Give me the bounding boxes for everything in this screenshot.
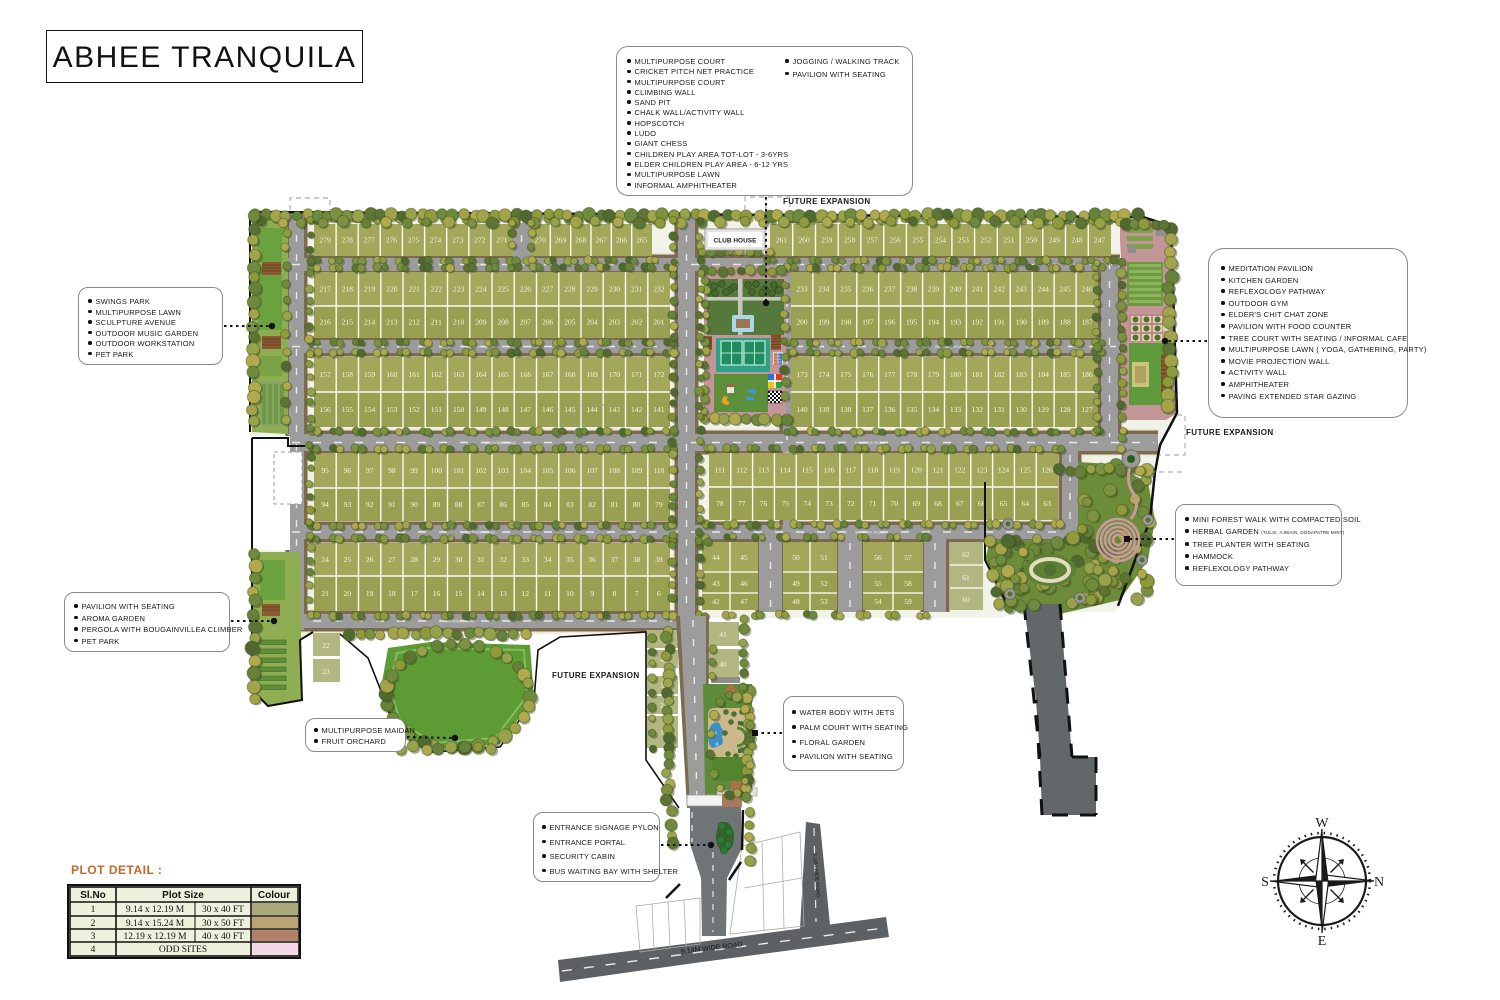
svg-text:Colour: Colour bbox=[258, 890, 290, 901]
svg-text:ODD SITES: ODD SITES bbox=[159, 945, 207, 955]
svg-text:71: 71 bbox=[869, 499, 877, 508]
svg-text:252: 252 bbox=[980, 236, 992, 245]
svg-text:222: 222 bbox=[431, 285, 443, 294]
svg-text:268: 268 bbox=[575, 236, 587, 245]
svg-text:83: 83 bbox=[566, 500, 574, 509]
svg-text:74: 74 bbox=[803, 499, 811, 508]
svg-text:81: 81 bbox=[611, 500, 619, 509]
svg-text:16: 16 bbox=[433, 589, 441, 598]
svg-text:42: 42 bbox=[712, 597, 720, 606]
svg-text:119: 119 bbox=[889, 466, 900, 475]
svg-text:227: 227 bbox=[542, 285, 554, 294]
svg-text:65: 65 bbox=[1000, 499, 1008, 508]
svg-text:187: 187 bbox=[1081, 318, 1093, 327]
svg-text:52: 52 bbox=[820, 579, 828, 588]
svg-text:146: 146 bbox=[542, 405, 554, 414]
svg-text:210: 210 bbox=[453, 318, 465, 327]
svg-text:128: 128 bbox=[1059, 405, 1071, 414]
svg-text:277: 277 bbox=[364, 236, 376, 245]
svg-text:Plot Size: Plot Size bbox=[162, 890, 204, 901]
svg-text:116: 116 bbox=[824, 466, 835, 475]
svg-text:250: 250 bbox=[1026, 236, 1038, 245]
svg-text:136: 136 bbox=[884, 405, 896, 414]
svg-text:182: 182 bbox=[994, 370, 1006, 379]
svg-text:239: 239 bbox=[928, 285, 940, 294]
svg-text:259: 259 bbox=[821, 236, 833, 245]
svg-text:118: 118 bbox=[867, 466, 878, 475]
svg-text:82: 82 bbox=[588, 500, 596, 509]
svg-text:176: 176 bbox=[862, 370, 874, 379]
svg-text:124: 124 bbox=[998, 466, 1010, 475]
svg-text:18: 18 bbox=[388, 589, 396, 598]
svg-text:185: 185 bbox=[1059, 370, 1071, 379]
svg-text:208: 208 bbox=[497, 318, 509, 327]
svg-text:276: 276 bbox=[386, 236, 398, 245]
svg-text:27: 27 bbox=[388, 555, 396, 564]
svg-text:148: 148 bbox=[497, 405, 509, 414]
svg-text:165: 165 bbox=[497, 370, 509, 379]
svg-text:133: 133 bbox=[950, 405, 962, 414]
svg-text:58: 58 bbox=[904, 579, 912, 588]
svg-text:167: 167 bbox=[542, 370, 554, 379]
svg-text:257: 257 bbox=[867, 236, 879, 245]
svg-text:266: 266 bbox=[616, 236, 628, 245]
svg-text:194: 194 bbox=[928, 318, 940, 327]
svg-text:241: 241 bbox=[972, 285, 984, 294]
svg-text:226: 226 bbox=[520, 285, 532, 294]
svg-text:205: 205 bbox=[564, 318, 576, 327]
svg-text:271: 271 bbox=[496, 236, 508, 245]
svg-text:70: 70 bbox=[891, 499, 899, 508]
svg-text:223: 223 bbox=[453, 285, 465, 294]
svg-text:9.14 x 12.19 M: 9.14 x 12.19 M bbox=[126, 905, 185, 915]
svg-text:44: 44 bbox=[712, 553, 720, 562]
svg-text:121: 121 bbox=[932, 466, 944, 475]
svg-text:4: 4 bbox=[91, 945, 96, 955]
svg-text:155: 155 bbox=[342, 405, 354, 414]
svg-text:9: 9 bbox=[590, 589, 594, 598]
svg-text:249: 249 bbox=[1049, 236, 1061, 245]
svg-text:23: 23 bbox=[322, 667, 330, 676]
svg-text:139: 139 bbox=[818, 405, 830, 414]
svg-text:178: 178 bbox=[906, 370, 918, 379]
svg-text:123: 123 bbox=[976, 466, 988, 475]
svg-text:147: 147 bbox=[520, 405, 532, 414]
svg-text:253: 253 bbox=[958, 236, 970, 245]
svg-text:240: 240 bbox=[950, 285, 962, 294]
svg-text:251: 251 bbox=[1003, 236, 1015, 245]
svg-text:244: 244 bbox=[1038, 285, 1050, 294]
svg-text:34: 34 bbox=[544, 555, 552, 564]
svg-text:12.19 x 12.19 M: 12.19 x 12.19 M bbox=[123, 932, 187, 942]
svg-text:161: 161 bbox=[408, 370, 420, 379]
svg-text:CLUB HOUSE: CLUB HOUSE bbox=[714, 238, 758, 245]
svg-text:50: 50 bbox=[792, 553, 800, 562]
svg-text:192: 192 bbox=[972, 318, 984, 327]
svg-text:77: 77 bbox=[738, 499, 746, 508]
svg-text:186: 186 bbox=[1081, 370, 1093, 379]
svg-text:169: 169 bbox=[586, 370, 598, 379]
svg-text:219: 219 bbox=[364, 285, 376, 294]
svg-text:184: 184 bbox=[1038, 370, 1050, 379]
svg-text:91: 91 bbox=[388, 500, 396, 509]
svg-text:12: 12 bbox=[522, 589, 530, 598]
svg-text:195: 195 bbox=[906, 318, 918, 327]
svg-text:33: 33 bbox=[522, 555, 530, 564]
svg-text:60: 60 bbox=[962, 595, 970, 604]
svg-text:228: 228 bbox=[564, 285, 576, 294]
svg-text:212: 212 bbox=[408, 318, 420, 327]
svg-text:216: 216 bbox=[319, 318, 331, 327]
svg-text:24: 24 bbox=[321, 555, 329, 564]
svg-text:261: 261 bbox=[776, 236, 788, 245]
svg-text:94: 94 bbox=[321, 500, 329, 509]
svg-text:211: 211 bbox=[431, 318, 442, 327]
svg-text:8: 8 bbox=[613, 589, 617, 598]
svg-text:55: 55 bbox=[874, 579, 882, 588]
svg-text:6: 6 bbox=[657, 589, 661, 598]
svg-text:51: 51 bbox=[820, 553, 828, 562]
svg-text:254: 254 bbox=[935, 236, 947, 245]
svg-text:213: 213 bbox=[386, 318, 398, 327]
svg-text:80: 80 bbox=[633, 500, 641, 509]
svg-text:53: 53 bbox=[820, 597, 828, 606]
svg-text:137: 137 bbox=[862, 405, 874, 414]
svg-text:11: 11 bbox=[544, 589, 551, 598]
svg-text:214: 214 bbox=[364, 318, 376, 327]
svg-text:273: 273 bbox=[452, 236, 464, 245]
svg-text:265: 265 bbox=[636, 236, 648, 245]
svg-text:49: 49 bbox=[792, 579, 800, 588]
svg-text:31: 31 bbox=[477, 555, 485, 564]
svg-text:170: 170 bbox=[609, 370, 621, 379]
svg-text:43: 43 bbox=[712, 579, 720, 588]
svg-text:145: 145 bbox=[564, 405, 576, 414]
svg-text:230: 230 bbox=[609, 285, 621, 294]
svg-text:41: 41 bbox=[719, 630, 727, 639]
svg-text:153: 153 bbox=[386, 405, 398, 414]
svg-text:90: 90 bbox=[410, 500, 418, 509]
svg-text:7: 7 bbox=[635, 589, 639, 598]
svg-text:69: 69 bbox=[912, 499, 920, 508]
svg-text:233: 233 bbox=[796, 285, 808, 294]
svg-text:88: 88 bbox=[455, 500, 463, 509]
svg-text:229: 229 bbox=[586, 285, 598, 294]
svg-text:197: 197 bbox=[862, 318, 874, 327]
svg-text:181: 181 bbox=[972, 370, 984, 379]
svg-text:25: 25 bbox=[344, 555, 352, 564]
svg-text:13: 13 bbox=[499, 589, 507, 598]
svg-text:20: 20 bbox=[344, 589, 352, 598]
svg-text:138: 138 bbox=[840, 405, 852, 414]
svg-text:175: 175 bbox=[840, 370, 852, 379]
svg-text:191: 191 bbox=[994, 318, 1006, 327]
svg-text:107: 107 bbox=[586, 466, 598, 475]
svg-text:86: 86 bbox=[499, 500, 507, 509]
svg-text:260: 260 bbox=[798, 236, 810, 245]
svg-text:30 x 50 FT: 30 x 50 FT bbox=[202, 919, 244, 929]
svg-text:174: 174 bbox=[818, 370, 830, 379]
svg-text:54: 54 bbox=[874, 597, 882, 606]
svg-text:14: 14 bbox=[477, 589, 485, 598]
svg-text:221: 221 bbox=[408, 285, 420, 294]
svg-text:162: 162 bbox=[431, 370, 443, 379]
svg-text:15: 15 bbox=[455, 589, 463, 598]
svg-text:21: 21 bbox=[321, 589, 329, 598]
svg-text:109: 109 bbox=[631, 466, 643, 475]
svg-text:92: 92 bbox=[366, 500, 374, 509]
svg-text:Sl.No: Sl.No bbox=[80, 890, 106, 901]
svg-text:126: 126 bbox=[1041, 466, 1053, 475]
svg-text:106: 106 bbox=[564, 466, 576, 475]
svg-text:134: 134 bbox=[928, 405, 940, 414]
svg-text:47: 47 bbox=[740, 597, 748, 606]
svg-text:157: 157 bbox=[319, 370, 331, 379]
svg-text:272: 272 bbox=[474, 236, 486, 245]
svg-text:201: 201 bbox=[653, 318, 665, 327]
svg-text:237: 237 bbox=[884, 285, 896, 294]
svg-text:100: 100 bbox=[431, 466, 443, 475]
svg-text:108: 108 bbox=[609, 466, 621, 475]
svg-text:127: 127 bbox=[1081, 405, 1093, 414]
svg-text:180: 180 bbox=[950, 370, 962, 379]
svg-text:269: 269 bbox=[555, 236, 567, 245]
svg-text:97: 97 bbox=[366, 466, 374, 475]
svg-text:36: 36 bbox=[588, 555, 596, 564]
svg-text:130: 130 bbox=[1016, 405, 1028, 414]
svg-text:93: 93 bbox=[344, 500, 352, 509]
svg-text:143: 143 bbox=[609, 405, 621, 414]
svg-text:206: 206 bbox=[542, 318, 554, 327]
svg-text:245: 245 bbox=[1059, 285, 1071, 294]
svg-text:247: 247 bbox=[1094, 236, 1106, 245]
svg-text:57: 57 bbox=[904, 553, 912, 562]
svg-text:115: 115 bbox=[802, 466, 813, 475]
svg-text:258: 258 bbox=[844, 236, 856, 245]
svg-text:209: 209 bbox=[475, 318, 487, 327]
svg-text:171: 171 bbox=[631, 370, 643, 379]
svg-text:104: 104 bbox=[520, 466, 532, 475]
svg-text:12M WIDE ROAD: 12M WIDE ROAD bbox=[484, 440, 516, 445]
svg-text:22: 22 bbox=[322, 641, 330, 650]
svg-text:172: 172 bbox=[653, 370, 665, 379]
svg-text:154: 154 bbox=[364, 405, 376, 414]
svg-text:40: 40 bbox=[719, 660, 727, 669]
svg-text:132: 132 bbox=[972, 405, 984, 414]
svg-text:30: 30 bbox=[455, 555, 463, 564]
svg-text:99: 99 bbox=[410, 466, 418, 475]
svg-text:96: 96 bbox=[344, 466, 352, 475]
svg-text:278: 278 bbox=[342, 236, 354, 245]
svg-text:68: 68 bbox=[934, 499, 942, 508]
svg-text:275: 275 bbox=[408, 236, 420, 245]
svg-text:28: 28 bbox=[410, 555, 418, 564]
svg-text:79: 79 bbox=[655, 500, 663, 509]
svg-text:238: 238 bbox=[906, 285, 918, 294]
svg-text:78: 78 bbox=[716, 499, 724, 508]
svg-text:35: 35 bbox=[566, 555, 574, 564]
svg-text:204: 204 bbox=[586, 318, 598, 327]
svg-text:84: 84 bbox=[544, 500, 552, 509]
svg-text:231: 231 bbox=[631, 285, 643, 294]
svg-text:256: 256 bbox=[889, 236, 901, 245]
svg-text:179: 179 bbox=[928, 370, 940, 379]
svg-text:73: 73 bbox=[825, 499, 833, 508]
svg-text:40 x 40 FT: 40 x 40 FT bbox=[202, 932, 244, 942]
svg-text:198: 198 bbox=[840, 318, 852, 327]
svg-text:149: 149 bbox=[475, 405, 487, 414]
svg-text:220: 220 bbox=[386, 285, 398, 294]
svg-text:101: 101 bbox=[453, 466, 465, 475]
svg-text:200: 200 bbox=[796, 318, 808, 327]
svg-text:203: 203 bbox=[609, 318, 621, 327]
svg-text:224: 224 bbox=[475, 285, 487, 294]
svg-text:246: 246 bbox=[1081, 285, 1093, 294]
svg-text:168: 168 bbox=[564, 370, 576, 379]
svg-text:95: 95 bbox=[321, 466, 329, 475]
svg-text:37: 37 bbox=[611, 555, 619, 564]
svg-text:114: 114 bbox=[780, 466, 791, 475]
svg-text:156: 156 bbox=[319, 405, 331, 414]
svg-text:166: 166 bbox=[520, 370, 532, 379]
svg-text:215: 215 bbox=[342, 318, 354, 327]
svg-text:267: 267 bbox=[596, 236, 608, 245]
svg-text:72: 72 bbox=[847, 499, 855, 508]
svg-text:75: 75 bbox=[782, 499, 790, 508]
svg-text:56: 56 bbox=[874, 553, 882, 562]
svg-text:144: 144 bbox=[586, 405, 598, 414]
svg-text:46: 46 bbox=[740, 579, 748, 588]
svg-text:152: 152 bbox=[408, 405, 420, 414]
svg-text:3: 3 bbox=[91, 932, 96, 942]
svg-text:59: 59 bbox=[904, 597, 912, 606]
svg-text:112: 112 bbox=[736, 466, 747, 475]
svg-text:131: 131 bbox=[994, 405, 1006, 414]
svg-text:225: 225 bbox=[497, 285, 509, 294]
svg-text:274: 274 bbox=[430, 236, 442, 245]
svg-text:196: 196 bbox=[884, 318, 896, 327]
svg-text:141: 141 bbox=[653, 405, 665, 414]
svg-text:1: 1 bbox=[91, 905, 96, 915]
svg-text:207: 207 bbox=[520, 318, 532, 327]
svg-text:113: 113 bbox=[758, 466, 769, 475]
svg-text:235: 235 bbox=[840, 285, 852, 294]
svg-text:87: 87 bbox=[477, 500, 485, 509]
svg-text:177: 177 bbox=[884, 370, 896, 379]
svg-text:190: 190 bbox=[1016, 318, 1028, 327]
svg-text:159: 159 bbox=[364, 370, 376, 379]
svg-text:32: 32 bbox=[499, 555, 507, 564]
svg-text:38: 38 bbox=[633, 555, 641, 564]
svg-text:183: 183 bbox=[1016, 370, 1028, 379]
svg-text:243: 243 bbox=[1016, 285, 1028, 294]
svg-text:64: 64 bbox=[1022, 499, 1030, 508]
svg-text:188: 188 bbox=[1059, 318, 1071, 327]
svg-text:163: 163 bbox=[453, 370, 465, 379]
svg-text:150: 150 bbox=[453, 405, 465, 414]
svg-text:45: 45 bbox=[740, 553, 748, 562]
svg-text:39: 39 bbox=[655, 555, 663, 564]
svg-text:67: 67 bbox=[956, 499, 964, 508]
svg-text:125: 125 bbox=[1020, 466, 1032, 475]
svg-text:62: 62 bbox=[962, 550, 970, 559]
svg-text:164: 164 bbox=[475, 370, 487, 379]
svg-text:9.14 x 15.24 M: 9.14 x 15.24 M bbox=[126, 919, 185, 929]
svg-text:140: 140 bbox=[796, 405, 808, 414]
svg-text:2: 2 bbox=[91, 919, 96, 929]
svg-text:142: 142 bbox=[631, 405, 643, 414]
svg-text:236: 236 bbox=[862, 285, 874, 294]
svg-text:199: 199 bbox=[818, 318, 830, 327]
svg-text:29: 29 bbox=[433, 555, 441, 564]
svg-text:103: 103 bbox=[497, 466, 509, 475]
svg-text:61: 61 bbox=[962, 573, 970, 582]
svg-text:76: 76 bbox=[760, 499, 768, 508]
svg-text:10: 10 bbox=[566, 589, 574, 598]
svg-text:19: 19 bbox=[366, 589, 374, 598]
svg-text:160: 160 bbox=[386, 370, 398, 379]
svg-text:129: 129 bbox=[1038, 405, 1050, 414]
svg-text:279: 279 bbox=[319, 236, 331, 245]
svg-text:158: 158 bbox=[342, 370, 354, 379]
svg-text:189: 189 bbox=[1038, 318, 1050, 327]
svg-text:17: 17 bbox=[410, 589, 418, 598]
svg-text:217: 217 bbox=[319, 285, 331, 294]
svg-text:232: 232 bbox=[653, 285, 665, 294]
svg-text:102: 102 bbox=[475, 466, 487, 475]
svg-text:120: 120 bbox=[911, 466, 923, 475]
svg-text:110: 110 bbox=[653, 466, 664, 475]
svg-text:248: 248 bbox=[1071, 236, 1083, 245]
svg-text:218: 218 bbox=[342, 285, 354, 294]
svg-text:122: 122 bbox=[954, 466, 966, 475]
svg-text:242: 242 bbox=[994, 285, 1006, 294]
svg-text:105: 105 bbox=[542, 466, 554, 475]
svg-text:135: 135 bbox=[906, 405, 918, 414]
svg-text:117: 117 bbox=[845, 466, 856, 475]
svg-text:234: 234 bbox=[818, 285, 830, 294]
svg-text:63: 63 bbox=[1043, 499, 1051, 508]
svg-text:173: 173 bbox=[796, 370, 808, 379]
svg-text:255: 255 bbox=[912, 236, 924, 245]
svg-text:48: 48 bbox=[792, 597, 800, 606]
svg-text:202: 202 bbox=[631, 318, 643, 327]
svg-text:151: 151 bbox=[431, 405, 443, 414]
svg-text:111: 111 bbox=[715, 466, 726, 475]
svg-text:193: 193 bbox=[950, 318, 962, 327]
svg-text:89: 89 bbox=[433, 500, 441, 509]
svg-text:98: 98 bbox=[388, 466, 396, 475]
svg-text:30 x 40 FT: 30 x 40 FT bbox=[202, 905, 244, 915]
svg-text:26: 26 bbox=[366, 555, 374, 564]
svg-text:85: 85 bbox=[522, 500, 530, 509]
